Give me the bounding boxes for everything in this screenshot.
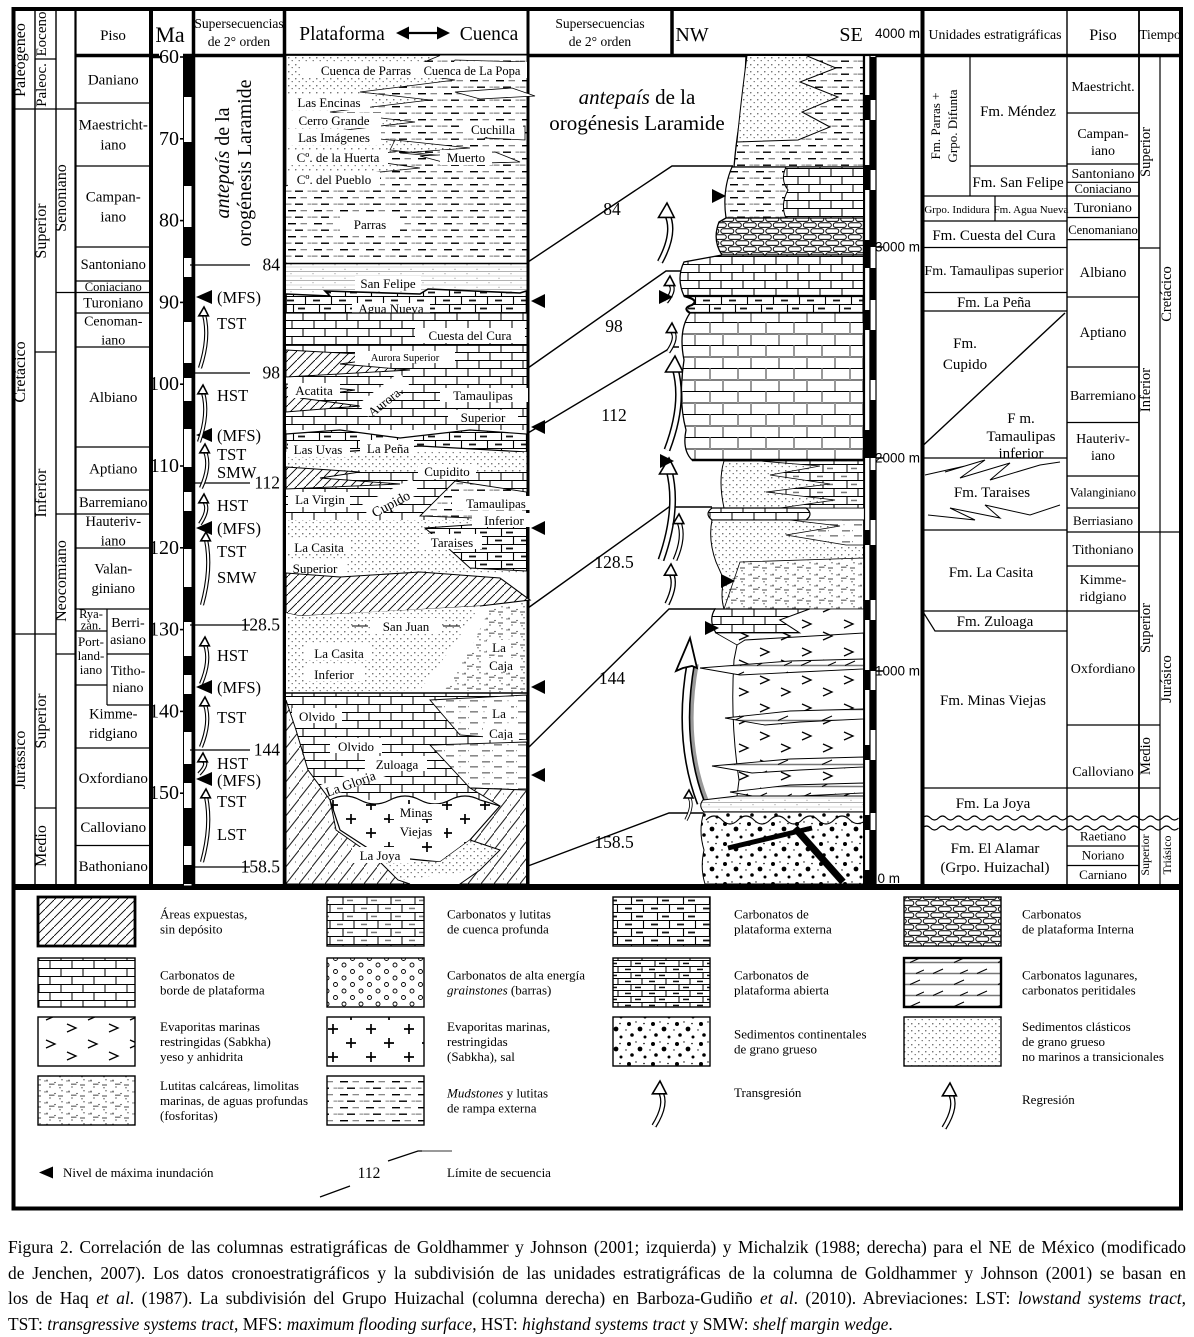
svg-text:Maestricht.: Maestricht. <box>1071 80 1134 95</box>
svg-text:Aptiano: Aptiano <box>89 462 137 478</box>
svg-text:Cenoman-: Cenoman- <box>84 314 143 329</box>
svg-text:San Juan: San Juan <box>383 619 430 634</box>
svg-text:Evaporitas marinas: Evaporitas marinas <box>160 1019 260 1034</box>
svg-text:inferior: inferior <box>999 446 1044 462</box>
svg-text:iano: iano <box>80 662 102 677</box>
svg-text:98: 98 <box>263 363 281 383</box>
svg-text:no marinos a transicionales: no marinos a transicionales <box>1022 1049 1164 1064</box>
svg-text:Cretácico: Cretácico <box>12 341 29 402</box>
svg-text:Jurásico: Jurásico <box>1159 655 1175 703</box>
svg-text:Las Uvas: Las Uvas <box>294 442 343 457</box>
svg-text:HST: HST <box>217 496 248 515</box>
svg-text:Eoceno: Eoceno <box>34 12 50 57</box>
svg-text:Cerro Grande: Cerro Grande <box>298 113 369 128</box>
svg-text:110: 110 <box>150 455 179 477</box>
svg-text:NW: NW <box>675 24 708 46</box>
svg-text:Supersecuencias: Supersecuencias <box>194 16 283 31</box>
svg-text:La Casita: La Casita <box>294 540 344 555</box>
svg-text:Port-: Port- <box>78 634 104 649</box>
svg-text:Tamaulipas: Tamaulipas <box>987 429 1056 445</box>
svg-text:ridgiano: ridgiano <box>1080 590 1127 605</box>
svg-text:Bathoniano: Bathoniano <box>79 859 148 875</box>
svg-text:carbonatos peritidales: carbonatos peritidales <box>1022 983 1136 998</box>
svg-text:Fm. Zuloaga: Fm. Zuloaga <box>957 614 1034 630</box>
svg-text:Transgresión: Transgresión <box>734 1085 802 1100</box>
svg-text:iano: iano <box>100 210 126 226</box>
svg-text:0 m: 0 m <box>877 871 900 886</box>
svg-text:Fm.: Fm. <box>953 336 977 352</box>
svg-text:Tithoniano: Tithoniano <box>1073 543 1134 558</box>
svg-text:TST: TST <box>217 445 246 464</box>
svg-text:yeso y anhidrita: yeso y anhidrita <box>160 1049 243 1064</box>
svg-text:84: 84 <box>603 199 621 219</box>
svg-text:La Casita: La Casita <box>314 646 364 661</box>
svg-text:90: 90 <box>159 291 179 313</box>
svg-text:158.5: 158.5 <box>594 832 634 852</box>
svg-text:Santoniano: Santoniano <box>81 257 146 273</box>
svg-text:de grano grueso: de grano grueso <box>1022 1034 1105 1049</box>
svg-text:120: 120 <box>149 537 179 559</box>
svg-text:restringidas (Sabkha): restringidas (Sabkha) <box>160 1034 271 1049</box>
svg-text:Superior: Superior <box>33 203 50 259</box>
svg-text:Cº. del Pueblo: Cº. del Pueblo <box>297 172 371 187</box>
svg-text:TST: TST <box>217 708 246 727</box>
svg-text:plataforma abierta: plataforma abierta <box>734 983 829 998</box>
svg-text:niano: niano <box>112 681 143 696</box>
svg-text:Jurássico: Jurássico <box>12 731 29 790</box>
svg-text:La Virgin: La Virgin <box>295 492 345 507</box>
svg-text:112: 112 <box>601 405 627 425</box>
svg-text:Grpo. Difunta: Grpo. Difunta <box>945 89 960 162</box>
svg-text:Fm. Parras +: Fm. Parras + <box>928 93 943 160</box>
svg-text:Cuenca de La Popa: Cuenca de La Popa <box>424 64 521 78</box>
svg-text:Fm. La Peña: Fm. La Peña <box>957 295 1031 311</box>
svg-text:Berriasiano: Berriasiano <box>1073 513 1133 528</box>
svg-text:Caja: Caja <box>489 726 513 741</box>
svg-text:Neocomiano: Neocomiano <box>53 540 70 622</box>
svg-text:Olvido: Olvido <box>338 739 374 754</box>
svg-text:Oxfordiano: Oxfordiano <box>1071 662 1136 677</box>
svg-text:Superior: Superior <box>1138 127 1154 177</box>
svg-text:112: 112 <box>358 1165 381 1182</box>
svg-text:Aurora Superior: Aurora Superior <box>371 353 440 364</box>
svg-text:Fm. San Felipe: Fm. San Felipe <box>972 175 1064 191</box>
svg-text:Cretácico: Cretácico <box>1159 266 1175 322</box>
svg-text:de grano grueso: de grano grueso <box>734 1042 817 1057</box>
svg-text:Barremiano: Barremiano <box>1070 389 1136 404</box>
svg-text:158.5: 158.5 <box>241 857 281 877</box>
svg-text:Carbonatos de: Carbonatos de <box>734 907 809 922</box>
svg-text:La Peña: La Peña <box>367 441 409 456</box>
svg-text:Calloviano: Calloviano <box>1072 765 1133 780</box>
svg-text:Inferior: Inferior <box>484 513 524 528</box>
svg-text:Caja: Caja <box>489 658 513 673</box>
svg-text:Carbonatos de: Carbonatos de <box>160 968 235 983</box>
svg-text:TST: TST <box>217 314 246 333</box>
svg-text:ridgiano: ridgiano <box>89 726 137 742</box>
svg-text:Fm. Cuesta del Cura: Fm. Cuesta del Cura <box>932 228 1056 244</box>
svg-text:de 2° orden: de 2° orden <box>208 34 271 49</box>
svg-text:iano: iano <box>101 333 125 348</box>
svg-text:128.5: 128.5 <box>241 615 281 635</box>
svg-text:Turoniano: Turoniano <box>83 296 143 312</box>
svg-text:land-: land- <box>78 648 105 663</box>
svg-text:Aptiano: Aptiano <box>1080 325 1127 341</box>
svg-text:Piso: Piso <box>1089 27 1117 44</box>
svg-text:(Grpo. Huizachal): (Grpo. Huizachal) <box>940 860 1049 876</box>
svg-text:Olvido: Olvido <box>299 709 335 724</box>
svg-text:Valanginiano: Valanginiano <box>1070 486 1136 500</box>
svg-text:Ma: Ma <box>155 22 185 47</box>
svg-text:Carbonatos: Carbonatos <box>1022 907 1081 922</box>
svg-text:Grpo. Indidura: Grpo. Indidura <box>924 204 989 216</box>
svg-text:plataforma externa: plataforma externa <box>734 922 832 937</box>
svg-text:98: 98 <box>605 316 623 336</box>
svg-text:Carbonatos de alta energía: Carbonatos de alta energía <box>447 968 585 983</box>
svg-text:128.5: 128.5 <box>594 552 634 572</box>
svg-text:Senoniano: Senoniano <box>53 164 70 232</box>
svg-text:Cupido: Cupido <box>943 357 987 373</box>
svg-text:SE: SE <box>839 24 862 46</box>
svg-text:Paleógeneo: Paleógeneo <box>12 23 29 97</box>
svg-text:Carbonatos lagunares,: Carbonatos lagunares, <box>1022 968 1138 983</box>
svg-text:Medio: Medio <box>1138 737 1154 775</box>
svg-text:Unidades estratigráficas: Unidades estratigráficas <box>929 27 1062 42</box>
svg-text:Hauteriv-: Hauteriv- <box>85 514 141 530</box>
svg-text:orogénesis Laramide: orogénesis Laramide <box>549 111 725 135</box>
svg-text:Coniaciano: Coniaciano <box>85 280 142 294</box>
svg-text:Acatita: Acatita <box>295 383 333 398</box>
svg-text:Parras: Parras <box>354 217 387 232</box>
svg-text:marinas, de aguas profundas: marinas, de aguas profundas <box>160 1093 308 1108</box>
svg-text:Inferior: Inferior <box>314 667 354 682</box>
svg-text:Piso: Piso <box>100 28 126 44</box>
svg-text:Tamaulipas: Tamaulipas <box>453 388 513 403</box>
svg-text:144: 144 <box>254 740 281 760</box>
svg-text:150: 150 <box>149 782 179 804</box>
svg-text:(Sabkha), sal: (Sabkha), sal <box>447 1049 515 1064</box>
svg-text:130: 130 <box>149 619 179 641</box>
svg-text:iano: iano <box>1091 449 1115 464</box>
svg-text:de cuenca profunda: de cuenca profunda <box>447 922 549 937</box>
svg-text:de plataforma Interna: de plataforma Interna <box>1022 922 1134 937</box>
svg-text:La: La <box>492 640 506 655</box>
svg-text:Evaporitas marinas,: Evaporitas marinas, <box>447 1019 550 1034</box>
svg-text:Oxfordiano: Oxfordiano <box>79 771 148 787</box>
svg-text:(MFS): (MFS) <box>217 426 261 445</box>
svg-text:Barremiano: Barremiano <box>79 495 147 511</box>
svg-text:Cuesta del Cura: Cuesta del Cura <box>428 328 511 343</box>
svg-text:Campan-: Campan- <box>86 190 141 206</box>
svg-text:(MFS): (MFS) <box>217 771 261 790</box>
svg-text:Tamaulipas: Tamaulipas <box>466 496 526 511</box>
svg-text:Albiano: Albiano <box>89 390 137 406</box>
svg-text:Supersecuencias: Supersecuencias <box>555 16 644 31</box>
svg-text:Cenomaniano: Cenomaniano <box>1068 223 1137 237</box>
svg-text:San Felipe: San Felipe <box>360 276 415 291</box>
svg-text:2000 m: 2000 m <box>875 451 920 466</box>
svg-text:3000 m: 3000 m <box>875 240 920 255</box>
svg-text:144: 144 <box>599 668 626 688</box>
svg-text:Sedimentos clásticos: Sedimentos clásticos <box>1022 1019 1131 1034</box>
svg-text:Muerto: Muerto <box>447 150 485 165</box>
svg-text:Fm. Tamaulipas superior: Fm. Tamaulipas superior <box>924 264 1063 279</box>
svg-text:Superior: Superior <box>461 410 506 425</box>
svg-text:(MFS): (MFS) <box>217 519 261 538</box>
svg-text:Fm. La Casita: Fm. La Casita <box>949 565 1034 581</box>
svg-text:Berri-: Berri- <box>111 616 145 631</box>
svg-text:Paleoc.: Paleoc. <box>34 63 50 107</box>
svg-text:(fosforitas): (fosforitas) <box>160 1108 218 1123</box>
svg-text:Valan-: Valan- <box>94 562 132 578</box>
svg-text:iano: iano <box>101 534 126 550</box>
svg-text:Fm. Taraises: Fm. Taraises <box>954 485 1030 501</box>
svg-text:Daniano: Daniano <box>88 72 139 88</box>
svg-text:Regresión: Regresión <box>1022 1092 1075 1107</box>
svg-text:zàn.: zàn. <box>81 619 101 633</box>
svg-text:Lutitas calcáreas, limolitas: Lutitas calcáreas, limolitas <box>160 1078 299 1093</box>
svg-text:iano: iano <box>1091 144 1115 159</box>
svg-text:Áreas expuestas,: Áreas expuestas, <box>160 907 247 922</box>
svg-text:Viejas: Viejas <box>400 824 432 839</box>
svg-text:giniano: giniano <box>92 581 136 597</box>
svg-text:Turoniano: Turoniano <box>1074 201 1132 216</box>
svg-text:Kimme-: Kimme- <box>89 707 137 723</box>
svg-text:Nivel de máxima inundación: Nivel de máxima inundación <box>63 1165 214 1180</box>
svg-text:Las Imágenes: Las Imágenes <box>298 130 370 145</box>
svg-text:(MFS): (MFS) <box>217 288 261 307</box>
svg-text:Coniaciano: Coniaciano <box>1075 182 1132 196</box>
svg-text:Inferior: Inferior <box>33 468 50 518</box>
svg-text:Inferior: Inferior <box>1138 368 1154 412</box>
svg-text:HST: HST <box>217 386 248 405</box>
svg-text:Tiempo: Tiempo <box>1139 27 1181 42</box>
svg-text:sin depósito: sin depósito <box>160 922 222 937</box>
svg-text:Sedimentos continentales: Sedimentos continentales <box>734 1027 867 1042</box>
svg-text:TST: TST <box>217 792 246 811</box>
svg-text:La: La <box>492 706 506 721</box>
svg-text:Medio: Medio <box>33 825 50 867</box>
svg-text:1000 m: 1000 m <box>875 664 920 679</box>
svg-text:Zuloaga: Zuloaga <box>376 757 419 772</box>
svg-text:La Joya: La Joya <box>360 848 401 863</box>
svg-text:Triásico: Triásico <box>1160 836 1174 875</box>
svg-text:HST: HST <box>217 646 248 665</box>
svg-text:Carniano: Carniano <box>1079 867 1127 882</box>
svg-text:Cuchilla: Cuchilla <box>471 122 515 137</box>
svg-text:140: 140 <box>149 700 179 722</box>
svg-text:de rampa externa: de rampa externa <box>447 1101 537 1116</box>
svg-text:Hauteriv-: Hauteriv- <box>1076 432 1130 447</box>
svg-text:Límite de secuencia: Límite de secuencia <box>447 1165 551 1180</box>
svg-text:Cuenca de Parras: Cuenca de Parras <box>321 63 411 78</box>
svg-text:antepaís de la: antepaís de la <box>212 107 234 218</box>
svg-text:borde de plataforma: borde de plataforma <box>160 983 265 998</box>
svg-text:Fm. Agua Nueva: Fm. Agua Nueva <box>994 204 1069 216</box>
svg-text:Las Encinas: Las Encinas <box>297 95 360 110</box>
svg-text:SMW: SMW <box>217 463 257 482</box>
svg-text:TST: TST <box>217 542 246 561</box>
svg-text:Maestricht-: Maestricht- <box>79 118 148 134</box>
svg-text:Superior: Superior <box>33 693 50 749</box>
svg-text:orogénesis Laramide: orogénesis Laramide <box>234 79 256 246</box>
svg-text:grainstones (barras): grainstones (barras) <box>447 983 551 998</box>
svg-text:Cupidito: Cupidito <box>424 464 470 479</box>
svg-text:Kimme-: Kimme- <box>1080 573 1127 588</box>
svg-text:iano: iano <box>100 138 126 154</box>
svg-text:Taraises: Taraises <box>431 535 473 550</box>
svg-text:Superior: Superior <box>1138 603 1154 653</box>
svg-text:F m.: F m. <box>1007 411 1035 427</box>
svg-text:80: 80 <box>159 210 179 232</box>
svg-text:asiano: asiano <box>110 633 146 648</box>
svg-text:Raetiano: Raetiano <box>1080 829 1126 844</box>
svg-text:LST: LST <box>217 825 246 844</box>
svg-text:Fm. Méndez: Fm. Méndez <box>980 104 1056 120</box>
svg-text:SMW: SMW <box>217 568 257 587</box>
svg-text:Fm. La Joya: Fm. La Joya <box>956 796 1031 812</box>
svg-text:Cº. de la Huerta: Cº. de la Huerta <box>297 150 380 165</box>
svg-text:Superior: Superior <box>1138 834 1152 875</box>
svg-text:84: 84 <box>263 255 281 275</box>
svg-text:112: 112 <box>254 473 280 493</box>
svg-text:Cuenca: Cuenca <box>460 24 519 45</box>
svg-text:Plataforma: Plataforma <box>299 24 385 45</box>
svg-text:Fm. El Alamar: Fm. El Alamar <box>951 841 1040 857</box>
svg-text:Calloviano: Calloviano <box>80 820 146 836</box>
svg-text:(MFS): (MFS) <box>217 678 261 697</box>
svg-text:Carbonatos de: Carbonatos de <box>734 968 809 983</box>
svg-text:4000 m: 4000 m <box>875 26 920 41</box>
svg-text:de 2° orden: de 2° orden <box>569 34 632 49</box>
svg-text:Carbonatos y lutitas: Carbonatos y lutitas <box>447 907 551 922</box>
svg-text:restringidas: restringidas <box>447 1034 508 1049</box>
svg-text:Titho-: Titho- <box>111 664 146 679</box>
svg-text:70: 70 <box>159 128 179 150</box>
svg-text:100: 100 <box>149 373 179 395</box>
svg-text:Minas: Minas <box>400 805 433 820</box>
svg-text:antepaís de la: antepaís de la <box>579 85 696 109</box>
svg-text:Albiano: Albiano <box>1080 265 1127 281</box>
svg-text:Santoniano: Santoniano <box>1072 167 1135 182</box>
svg-text:Noriano: Noriano <box>1082 848 1125 863</box>
svg-text:Fm. Minas Viejas: Fm. Minas Viejas <box>940 693 1046 709</box>
svg-text:Mudstones y lutitas: Mudstones y lutitas <box>446 1086 548 1101</box>
svg-text:Campan-: Campan- <box>1077 127 1129 142</box>
